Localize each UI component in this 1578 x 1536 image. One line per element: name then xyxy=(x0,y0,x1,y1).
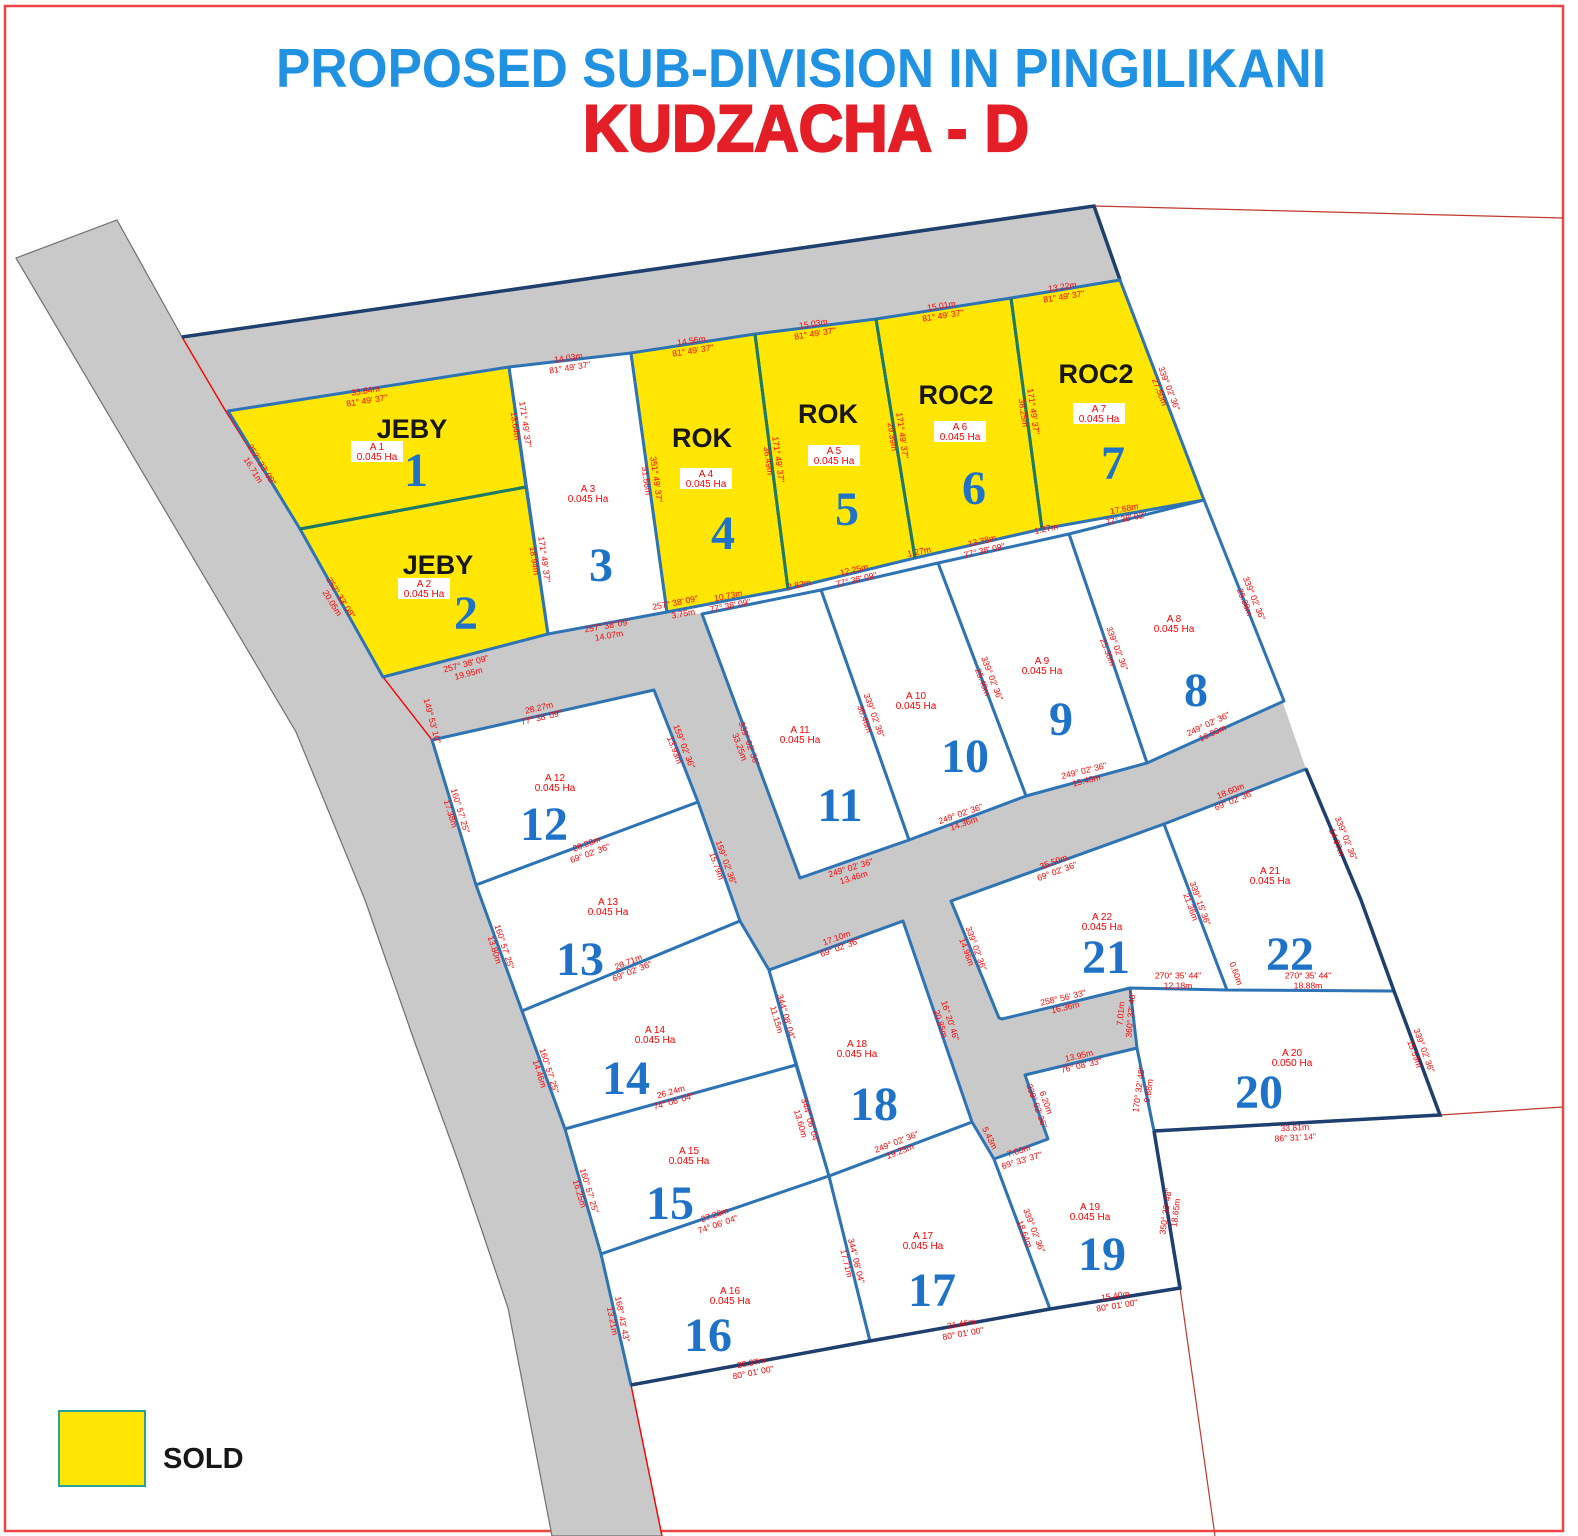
svg-text:0.045 Ha: 0.045 Ha xyxy=(404,589,445,600)
svg-text:14: 14 xyxy=(602,1052,650,1105)
svg-text:0.045 Ha: 0.045 Ha xyxy=(588,907,629,918)
svg-text:0.045 Ha: 0.045 Ha xyxy=(1022,666,1063,677)
svg-text:18: 18 xyxy=(850,1078,898,1131)
svg-text:KUDZACHA - D: KUDZACHA - D xyxy=(583,91,1029,165)
svg-text:0.045 Ha: 0.045 Ha xyxy=(896,701,937,712)
svg-text:16: 16 xyxy=(684,1309,732,1362)
svg-text:0.045 Ha: 0.045 Ha xyxy=(1079,414,1120,425)
svg-text:0.045 Ha: 0.045 Ha xyxy=(837,1049,878,1060)
svg-text:4: 4 xyxy=(711,507,735,560)
svg-text:6: 6 xyxy=(962,462,986,515)
svg-text:19: 19 xyxy=(1078,1228,1126,1281)
svg-text:0.045 Ha: 0.045 Ha xyxy=(903,1241,944,1252)
svg-text:13: 13 xyxy=(556,933,604,986)
svg-text:12: 12 xyxy=(520,798,568,851)
svg-text:22: 22 xyxy=(1266,928,1314,981)
svg-text:PROPOSED SUB-DIVISION IN PINGI: PROPOSED SUB-DIVISION IN PINGILIKANI xyxy=(276,37,1326,99)
svg-text:21: 21 xyxy=(1082,931,1130,984)
svg-text:0.045 Ha: 0.045 Ha xyxy=(535,783,576,794)
svg-text:18.88m: 18.88m xyxy=(1294,981,1323,991)
svg-text:11: 11 xyxy=(817,779,862,832)
svg-text:0.045 Ha: 0.045 Ha xyxy=(669,1156,710,1167)
svg-text:270° 35' 44": 270° 35' 44" xyxy=(1155,971,1201,981)
svg-text:ROC2: ROC2 xyxy=(1058,359,1133,389)
svg-text:SOLD: SOLD xyxy=(163,1443,244,1475)
svg-text:9: 9 xyxy=(1049,693,1073,746)
svg-text:0.045 Ha: 0.045 Ha xyxy=(357,452,398,463)
svg-text:20: 20 xyxy=(1235,1066,1283,1119)
svg-text:0.045 Ha: 0.045 Ha xyxy=(568,494,609,505)
svg-text:0.045 Ha: 0.045 Ha xyxy=(1154,624,1195,635)
svg-text:0.045 Ha: 0.045 Ha xyxy=(940,432,981,443)
svg-text:0.045 Ha: 0.045 Ha xyxy=(1070,1212,1111,1223)
svg-text:8: 8 xyxy=(1184,664,1208,717)
svg-text:15: 15 xyxy=(646,1177,694,1230)
svg-text:17: 17 xyxy=(908,1264,956,1317)
svg-text:JEBY: JEBY xyxy=(403,550,474,580)
svg-text:3: 3 xyxy=(589,539,613,592)
svg-text:7: 7 xyxy=(1101,437,1125,490)
svg-text:0.045 Ha: 0.045 Ha xyxy=(1250,876,1291,887)
svg-text:ROC2: ROC2 xyxy=(918,380,993,410)
svg-text:ROK: ROK xyxy=(798,399,859,429)
svg-text:0.045 Ha: 0.045 Ha xyxy=(814,456,855,467)
svg-text:ROK: ROK xyxy=(672,423,733,453)
svg-text:1: 1 xyxy=(404,444,428,497)
svg-text:2: 2 xyxy=(454,587,478,640)
svg-text:JEBY: JEBY xyxy=(377,414,448,444)
svg-text:0.045 Ha: 0.045 Ha xyxy=(780,735,821,746)
svg-text:12.18m: 12.18m xyxy=(1164,981,1193,991)
svg-text:0.045 Ha: 0.045 Ha xyxy=(710,1296,751,1307)
svg-text:0.045 Ha: 0.045 Ha xyxy=(686,479,727,490)
svg-text:0.045 Ha: 0.045 Ha xyxy=(635,1035,676,1046)
svg-text:10: 10 xyxy=(941,730,989,783)
svg-text:5: 5 xyxy=(835,483,859,536)
